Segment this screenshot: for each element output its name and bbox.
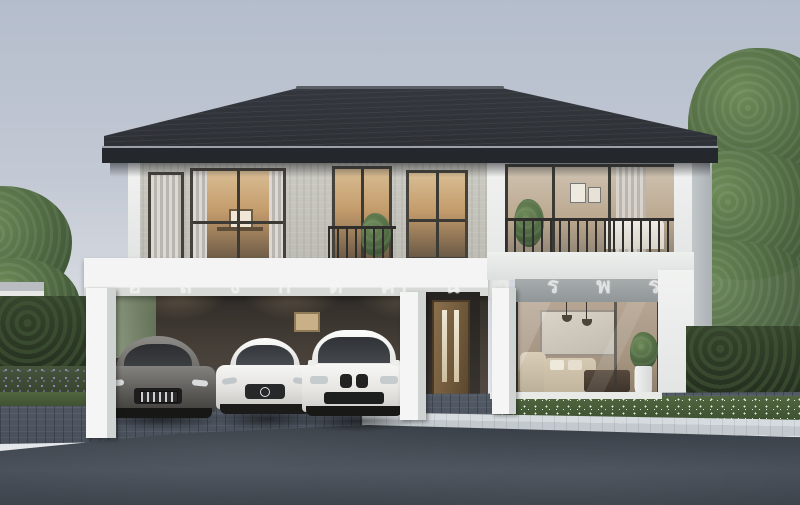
wall-frame: [588, 187, 601, 203]
facade-letter: ว: [497, 268, 509, 303]
roof-fascia-gutter: [102, 146, 718, 163]
facade-letter: ก: [278, 268, 291, 303]
mirror: [308, 360, 316, 366]
desk: [217, 227, 263, 231]
door-glass-slit: [454, 310, 459, 382]
carport-column-left: [86, 288, 116, 438]
kidney-grille-left: [340, 374, 352, 388]
upper-window-right: [406, 170, 468, 260]
car-body: [302, 364, 406, 412]
front-door: [432, 300, 470, 396]
curtain-right: [269, 171, 283, 260]
carport-wall-panel: [294, 312, 320, 332]
facade-letter: พ: [596, 268, 611, 303]
facade-letter: ต: [328, 268, 342, 303]
mirror: [392, 360, 400, 366]
curtain-left: [193, 171, 207, 260]
facade-lettering: อ ล ง ก ต คำ น ว ร พ ร: [128, 268, 660, 302]
car-lower: [104, 408, 212, 418]
facade-letter: ง: [230, 268, 241, 303]
facade-letter: ร: [648, 268, 660, 303]
upper-window-curtain: [148, 172, 184, 262]
facade-letter: อ: [128, 268, 141, 303]
headlight: [380, 376, 398, 384]
car-lower: [306, 406, 402, 416]
facade-letter: ล: [179, 268, 192, 303]
car-lower: [220, 404, 310, 414]
lower-grille: [324, 392, 384, 404]
carport-column-mid: [400, 292, 426, 420]
headlight: [310, 376, 328, 384]
window-mullion: [409, 219, 465, 222]
car-white-suv: [300, 330, 408, 422]
facade-letter: คำ: [380, 268, 407, 303]
hedge-right: [686, 326, 800, 402]
eave-shadow: [110, 163, 710, 177]
window-mullion: [193, 221, 283, 224]
living-room-glass: [515, 302, 660, 402]
upper-window-study: [190, 168, 286, 263]
window-mullion: [436, 173, 439, 257]
carport-column-right: [492, 288, 516, 414]
kidney-grille-right: [356, 374, 368, 388]
picture-frame: [229, 209, 253, 229]
star-badge: [260, 387, 270, 397]
car-grey-coupe: [100, 336, 216, 420]
exterior-render: อ ล ง ก ต คำ น ว ร พ ร: [0, 0, 800, 505]
wall-frame: [570, 183, 586, 203]
window-mullion: [237, 171, 240, 260]
corner-trim-left: [128, 163, 140, 263]
facade-letter: น: [445, 268, 460, 303]
windshield: [236, 345, 294, 365]
door-glass-slit: [442, 310, 447, 382]
roof-ridge: [296, 86, 504, 89]
license-plate: [140, 391, 178, 403]
glass-reflection: [518, 302, 657, 396]
windshield: [318, 337, 390, 363]
facade-letter: ร: [547, 268, 559, 303]
